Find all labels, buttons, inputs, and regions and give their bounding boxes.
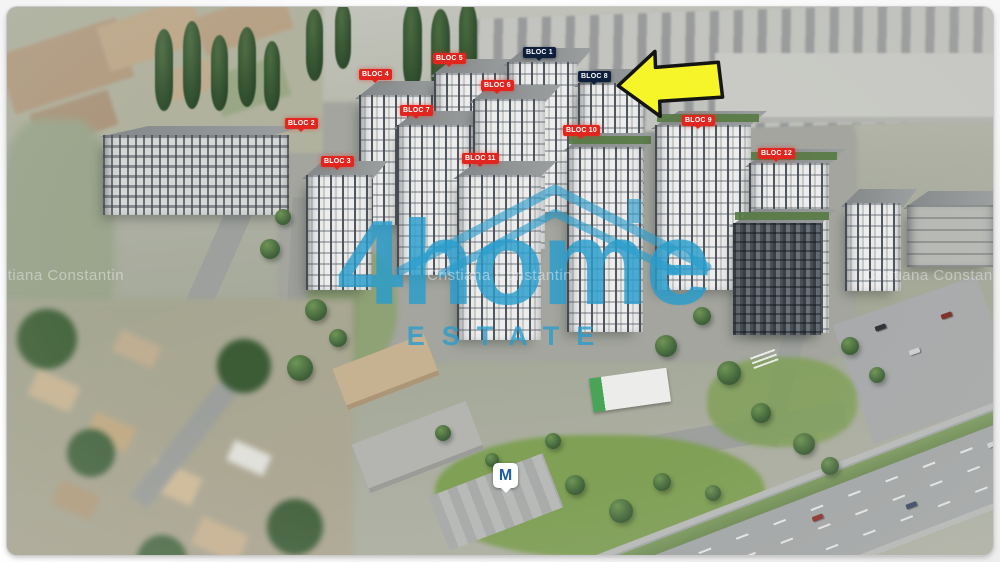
block-label-bloc-11: BLOC 11 <box>462 153 499 164</box>
credit-watermark-center: Cristiana Constantin <box>427 267 572 284</box>
tree <box>841 337 859 355</box>
tree <box>751 403 771 423</box>
poplar-tree <box>335 7 351 69</box>
tree <box>260 239 280 259</box>
block-label-bloc-6: BLOC 6 <box>481 80 514 91</box>
tree <box>717 361 741 385</box>
credit-watermark-left: Cristiana Constantin <box>7 267 124 284</box>
tree <box>305 299 327 321</box>
tree <box>793 433 815 455</box>
brand-watermark: 4home <box>337 203 709 323</box>
tree <box>705 485 721 501</box>
tree <box>275 209 291 225</box>
metro-pin: M <box>493 463 518 488</box>
poplar-tree <box>183 21 201 109</box>
block-label-bloc-1: BLOC 1 <box>523 47 556 58</box>
block-label-bloc-3: BLOC 3 <box>321 156 354 167</box>
poplar-tree <box>403 7 422 91</box>
tree <box>545 433 561 449</box>
tree <box>821 457 839 475</box>
block-label-bloc-4: BLOC 4 <box>359 69 392 80</box>
photo-frame: BLOC 2 BLOC 3 BLOC 4 BLOC 5 BLOC 1 BLOC … <box>0 0 1000 562</box>
yellow-arrow <box>604 41 733 123</box>
low-rise-district <box>7 299 353 555</box>
tree <box>287 355 313 381</box>
credit-watermark-right: Cristiana Constantin <box>865 267 993 284</box>
block-label-bloc-12: BLOC 12 <box>758 148 795 159</box>
parking-structure <box>103 135 289 215</box>
mini-market <box>589 368 671 413</box>
poplar-tree <box>306 9 323 81</box>
poplar-tree <box>238 27 256 107</box>
aerial-render-photo: BLOC 2 BLOC 3 BLOC 4 BLOC 5 BLOC 1 BLOC … <box>7 7 993 555</box>
metro-letter: M <box>499 467 512 485</box>
tree <box>609 499 633 523</box>
brand-watermark-tagline: ESTATE <box>335 321 683 352</box>
poplar-tree <box>155 29 173 111</box>
block-label-bloc-7: BLOC 7 <box>400 105 433 116</box>
block-label-bloc-2: BLOC 2 <box>285 118 318 129</box>
poplar-tree <box>211 35 228 111</box>
tree <box>869 367 885 383</box>
block-label-bloc-5: BLOC 5 <box>433 53 466 64</box>
tree <box>565 475 585 495</box>
office-building <box>907 205 993 267</box>
tree <box>435 425 451 441</box>
poplar-tree <box>264 41 280 111</box>
tree <box>653 473 671 491</box>
block-label-bloc-10: BLOC 10 <box>563 125 600 136</box>
dark-facade-building <box>733 223 821 335</box>
